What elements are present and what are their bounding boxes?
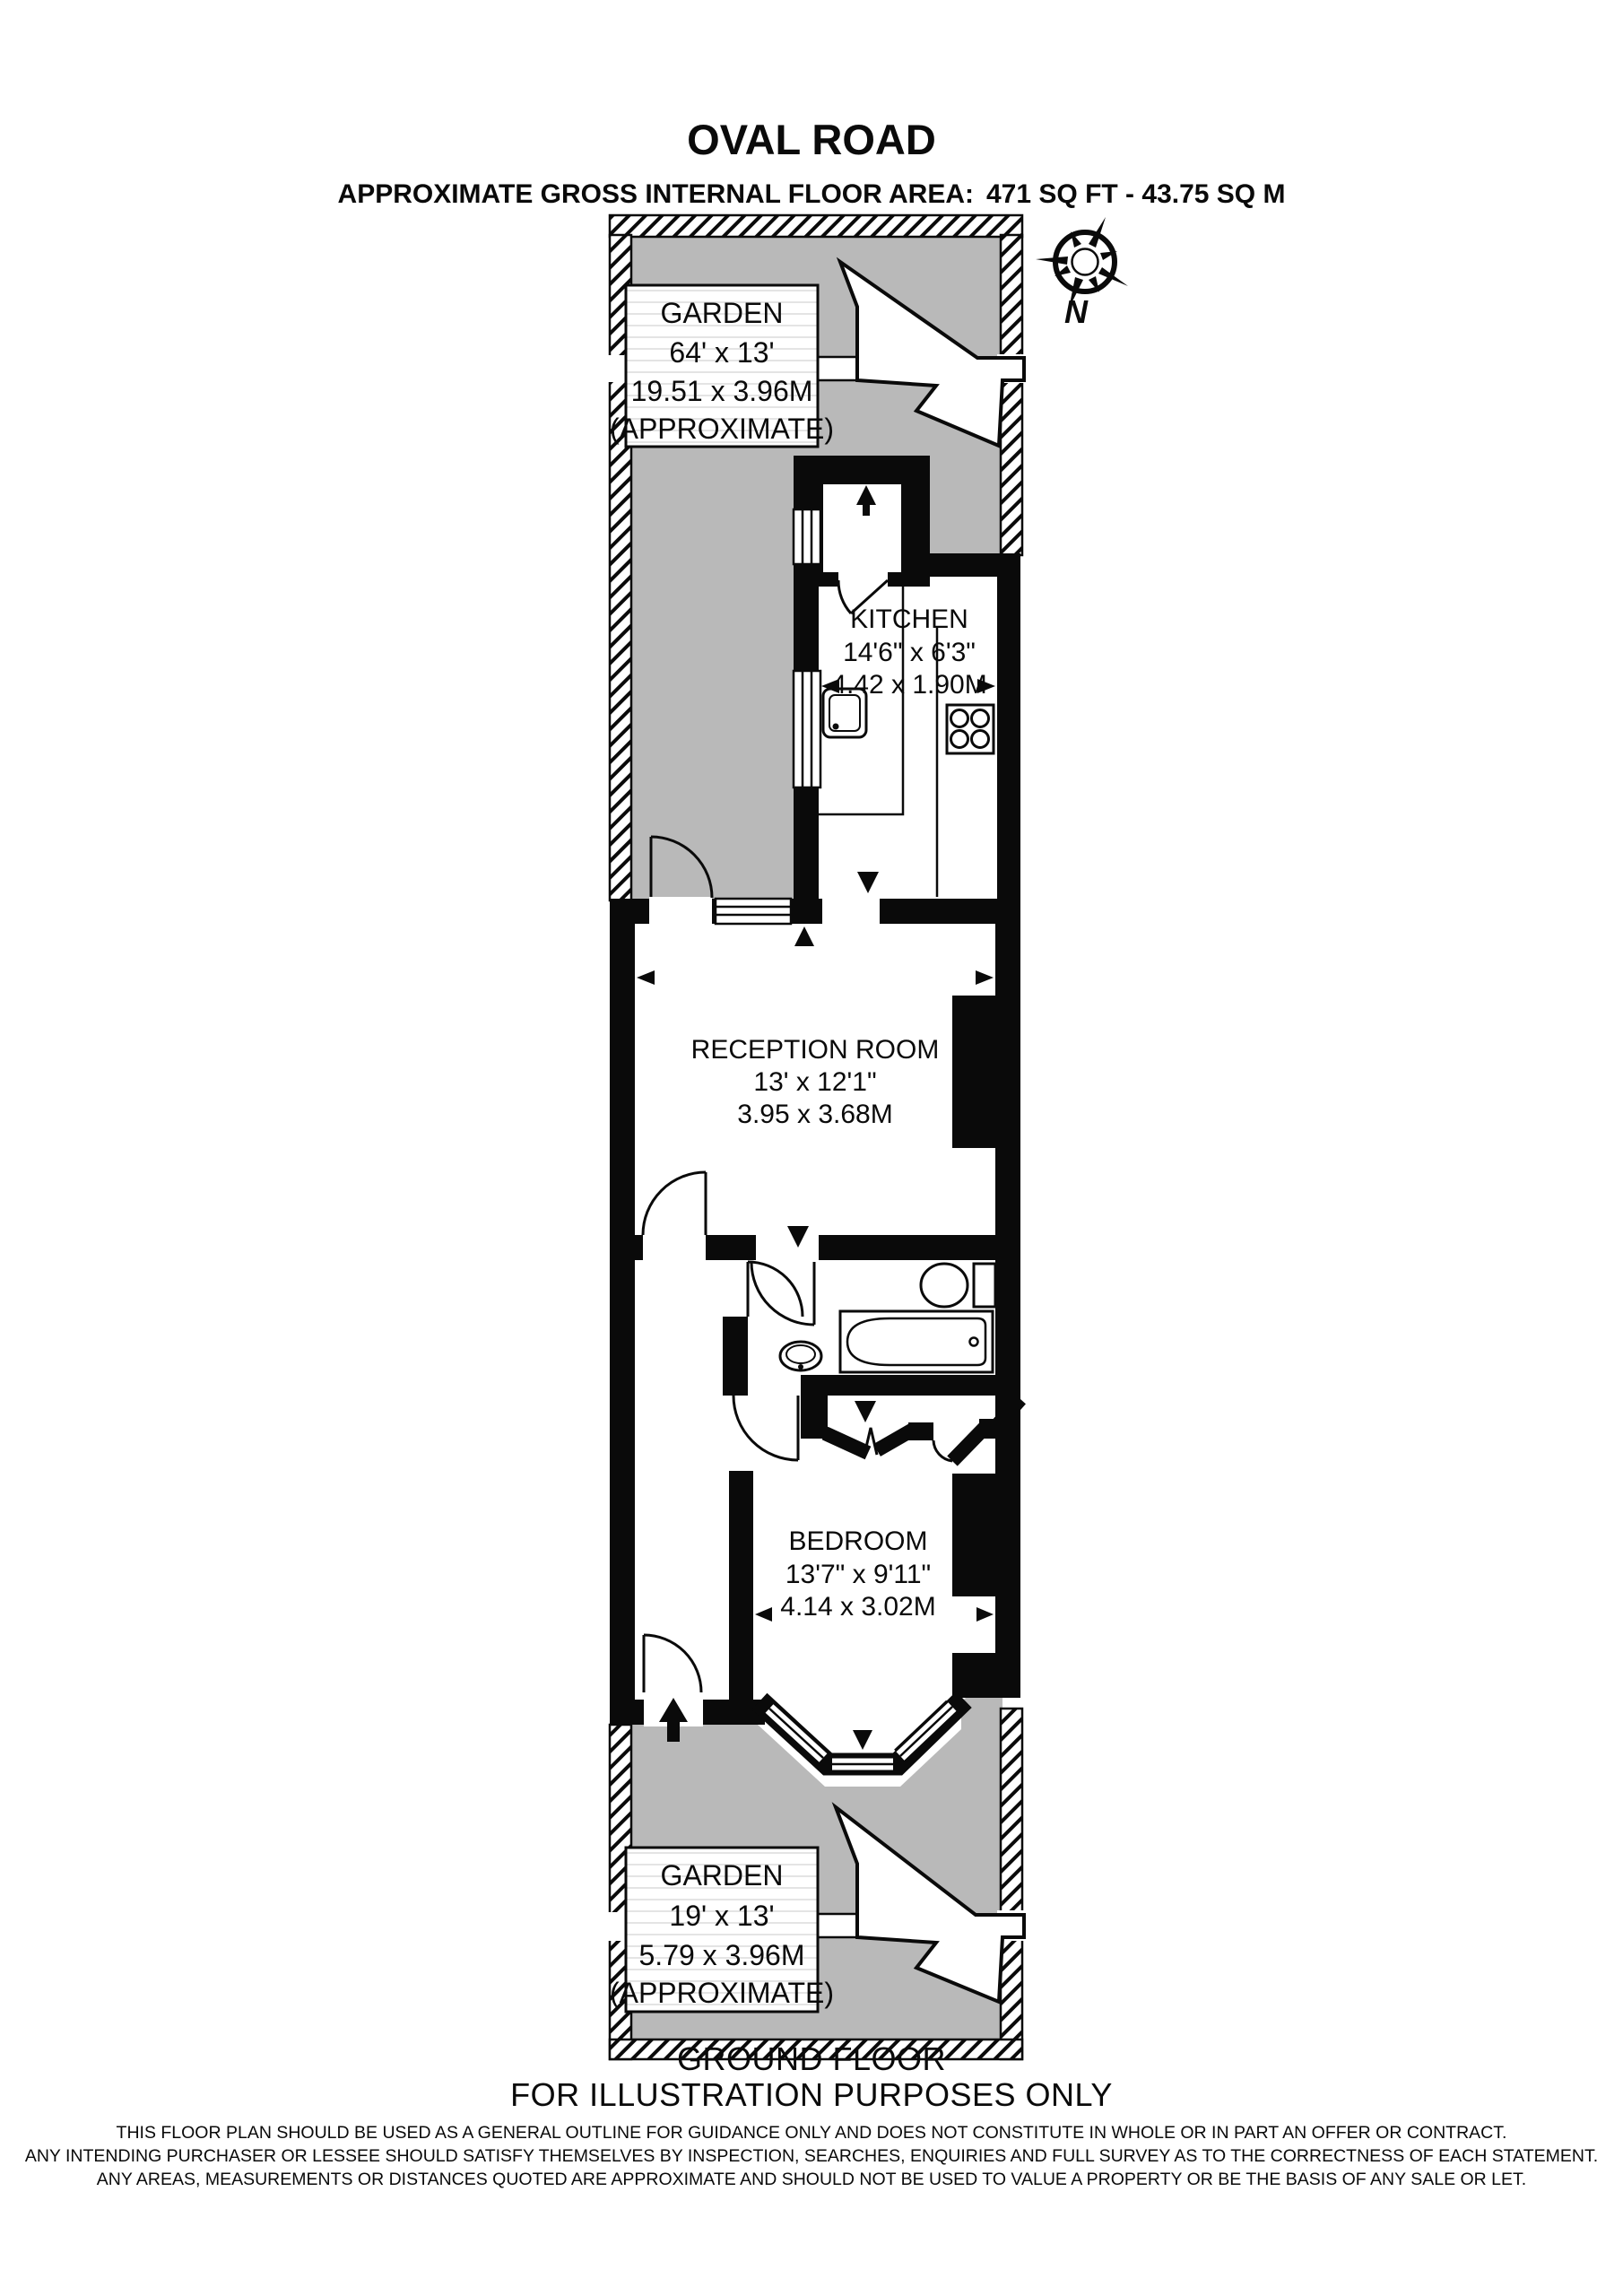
bedroom-chimney-breast <box>952 1474 995 1596</box>
garden-bottom-boundary-east <box>1001 1709 1022 2059</box>
kitchen-size-metric: 4.42 x 1.90M <box>831 670 986 700</box>
kitchen-name: KITCHEN <box>850 604 968 634</box>
reception-size-metric: 3.95 x 3.68M <box>737 1100 892 1129</box>
basin-symbol <box>780 1342 821 1370</box>
hall-bath-divider <box>723 1317 748 1396</box>
garden-door-opening <box>649 897 712 926</box>
garden-bottom-name: GARDEN <box>661 1859 784 1892</box>
reception-window <box>716 899 791 924</box>
reception-door-opening <box>643 1233 706 1262</box>
toilet-symbol <box>921 1264 995 1307</box>
compass-icon: N <box>1036 217 1128 330</box>
compass-center <box>1072 249 1098 275</box>
garden-bottom-size-metric: 5.79 x 3.96M <box>639 1939 805 1971</box>
reception-chimney-breast <box>952 996 995 1148</box>
break-strip <box>814 357 859 380</box>
garden-top-boundary-east <box>1001 235 1022 555</box>
alcove-pier-1 <box>801 1396 828 1439</box>
front-entrance-arrow-stem <box>667 1722 680 1742</box>
garden-bottom-size-imperial: 19' x 13' <box>669 1900 774 1932</box>
reception-name: RECEPTION ROOM <box>691 1035 940 1065</box>
kitchen-reception-opening <box>822 897 880 926</box>
floorplan-page: OVAL ROAD APPROXIMATE GROSS INTERNAL FLO… <box>0 0 1623 2296</box>
hob-symbol <box>947 705 994 753</box>
garden-top-size-imperial: 64' x 13' <box>669 336 774 369</box>
break-strip-2 <box>814 1914 859 1937</box>
bedroom-size-imperial: 13'7" x 9'11" <box>785 1560 931 1589</box>
page-title: OVAL ROAD <box>687 116 936 163</box>
house-east-wall <box>995 924 1020 1698</box>
garden-top-name: GARDEN <box>661 297 784 329</box>
kitchen-east-wall <box>997 577 1020 924</box>
floorplan-canvas: OVAL ROAD APPROXIMATE GROSS INTERNAL FLO… <box>0 0 1623 2296</box>
kitchen-north-east-wall <box>930 553 1020 577</box>
compass-north-label: N <box>1064 293 1089 330</box>
kitchen-window <box>794 671 820 787</box>
bedroom-corner-pier <box>952 1653 995 1698</box>
garden-bottom-note: (APPROXIMATE) <box>610 1977 834 2009</box>
bedroom-size-metric: 4.14 x 3.02M <box>780 1592 935 1622</box>
floor-name: GROUND FLOOR <box>677 2040 946 2077</box>
bathroom-south-wall <box>801 1375 1020 1396</box>
kitchen-size-imperial: 14'6" x 6'3" <box>843 638 976 667</box>
garden-top-size-metric: 19.51 x 3.96M <box>631 375 813 407</box>
lobby-window <box>794 509 820 564</box>
footer: GROUND FLOOR FOR ILLUSTRATION PURPOSES O… <box>25 2040 1598 2189</box>
alcove-pier-2 <box>908 1422 933 1440</box>
reception-hall-opening <box>756 1233 819 1262</box>
disclaimer-line-3: ANY AREAS, MEASUREMENTS OR DISTANCES QUO… <box>97 2170 1526 2189</box>
floor-area-value: 471 SQ FT - 43.75 SQ M <box>986 179 1285 209</box>
house-west-wall <box>610 924 635 1725</box>
bedroom-name: BEDROOM <box>788 1526 927 1556</box>
garden-top-note: (APPROXIMATE) <box>610 413 834 445</box>
bathtub-symbol <box>840 1311 993 1372</box>
illustration-note: FOR ILLUSTRATION PURPOSES ONLY <box>510 2076 1113 2113</box>
disclaimer-line-2: ANY INTENDING PURCHASER OR LESSEE SHOULD… <box>25 2146 1598 2166</box>
floor-area-line: APPROXIMATE GROSS INTERNAL FLOOR AREA:47… <box>338 179 1286 209</box>
reception-size-imperial: 13' x 12'1" <box>753 1067 876 1097</box>
lobby-entrance-arrow-stem <box>863 505 870 516</box>
bedroom-west-wall <box>729 1471 753 1700</box>
floor-area-label: APPROXIMATE GROSS INTERNAL FLOOR AREA: <box>338 179 974 209</box>
garden-top-boundary-north <box>610 215 1022 237</box>
hallway-floor <box>635 1260 729 1700</box>
disclaimer-line-1: THIS FLOOR PLAN SHOULD BE USED AS A GENE… <box>117 2123 1507 2143</box>
